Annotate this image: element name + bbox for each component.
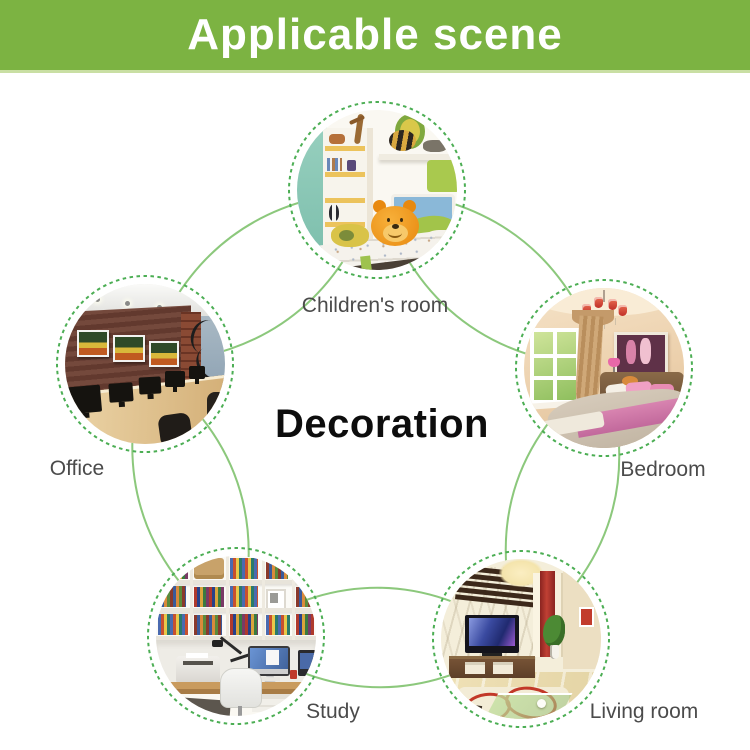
bedroom-label: Bedroom xyxy=(620,458,705,482)
children-room-label: Children's room xyxy=(302,294,448,318)
children-room-photo xyxy=(297,110,457,270)
side-monitor xyxy=(298,650,316,676)
window xyxy=(530,328,580,404)
monitor xyxy=(189,366,205,379)
wall-picture xyxy=(113,335,145,362)
tv-cabinet xyxy=(449,656,535,678)
bee-plush xyxy=(389,130,416,151)
monitor xyxy=(165,371,185,387)
pooh-plush xyxy=(371,204,419,248)
desk-chair xyxy=(220,668,262,708)
wall-picture xyxy=(77,330,109,357)
monitor xyxy=(66,385,102,415)
penguin-toy xyxy=(329,204,339,221)
center-label: Decoration xyxy=(275,402,489,447)
glass-table xyxy=(484,693,573,719)
bedroom-photo xyxy=(524,288,684,448)
office-chair xyxy=(157,412,193,444)
bookshelf-books xyxy=(158,559,188,579)
wall-picture xyxy=(149,341,179,367)
study-photo xyxy=(156,556,316,716)
office-label: Office xyxy=(50,457,104,481)
spotlight xyxy=(95,297,100,302)
study-label: Study xyxy=(306,700,360,724)
printer xyxy=(176,656,220,684)
living-room-photo xyxy=(441,559,601,719)
bedside-lamp xyxy=(608,358,620,367)
office-photo xyxy=(65,284,225,444)
living-room-label: Living room xyxy=(590,700,699,724)
toy-books xyxy=(327,158,342,171)
applicable-scene-infographic: Applicable scene xyxy=(0,0,750,750)
red-cup xyxy=(290,670,297,679)
monitor xyxy=(139,376,162,394)
monitor xyxy=(108,382,133,403)
television xyxy=(465,615,519,653)
